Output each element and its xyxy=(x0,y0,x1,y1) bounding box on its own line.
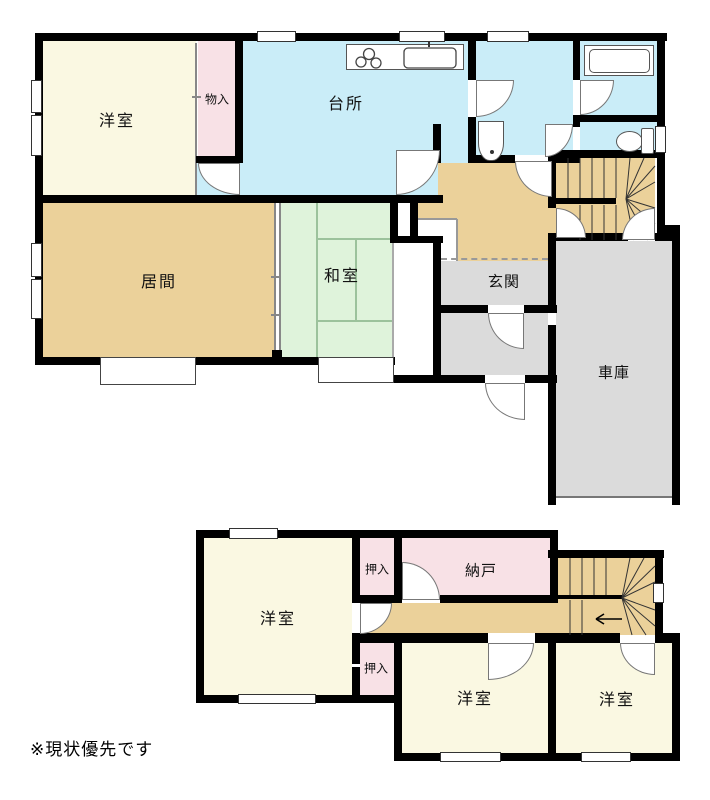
stair-arrow-icon xyxy=(596,614,622,624)
wall xyxy=(433,243,441,383)
wall xyxy=(352,538,360,603)
window xyxy=(399,31,445,42)
bay-window-japanese xyxy=(318,357,394,383)
hall-1f-c xyxy=(418,203,548,219)
toilet-tank-icon xyxy=(641,128,654,154)
wall xyxy=(394,641,402,761)
window xyxy=(487,31,529,42)
wall xyxy=(196,156,243,163)
wall xyxy=(657,152,665,233)
room-label-kitchen: 台所 xyxy=(328,90,364,114)
wall xyxy=(196,695,238,703)
wall xyxy=(655,558,663,583)
room-label-japanese: 和室 xyxy=(324,262,360,286)
window xyxy=(31,243,42,277)
room-label-garage: 車庫 xyxy=(598,362,630,383)
window xyxy=(653,583,664,603)
hall-1f-b xyxy=(443,195,548,203)
sliding-door-tick xyxy=(352,664,360,667)
washbasin-drain xyxy=(490,150,494,154)
window xyxy=(655,126,666,153)
window xyxy=(440,752,501,762)
wall-stub xyxy=(672,494,680,505)
wall xyxy=(672,233,680,505)
sliding-door-tick xyxy=(192,96,201,98)
wall xyxy=(433,305,488,313)
room-label-western-2f-1: 洋室 xyxy=(260,605,296,629)
wall xyxy=(394,753,440,761)
front-door xyxy=(485,383,525,420)
toilet-icon xyxy=(616,131,643,152)
wall xyxy=(235,33,243,158)
wall xyxy=(630,753,680,761)
window xyxy=(31,279,42,319)
room-label-western-2f-3: 洋室 xyxy=(599,686,635,710)
wall xyxy=(573,33,580,80)
wall xyxy=(548,325,556,505)
floor-plan: 洋室 物入 台所 居間 和室 玄関 車庫 xyxy=(0,0,710,800)
window xyxy=(238,694,316,704)
kitchen-counter xyxy=(346,44,464,70)
sliding-door-track xyxy=(195,43,197,195)
wall xyxy=(35,195,443,203)
tatami-line xyxy=(316,238,392,240)
wall xyxy=(548,241,556,310)
step-line xyxy=(456,219,458,261)
step-line xyxy=(418,218,457,220)
hall-1f-d xyxy=(457,219,548,261)
room-label-western-2f-2: 洋室 xyxy=(457,685,493,709)
room-label-storeroom: 納戸 xyxy=(465,560,497,581)
room-label-storage-1f: 物入 xyxy=(205,91,229,108)
tatami-line xyxy=(316,320,392,322)
wall xyxy=(524,305,557,313)
entrance-step-dashed-line xyxy=(441,258,548,260)
room-label-western-1f: 洋室 xyxy=(99,107,135,131)
wall xyxy=(352,595,402,603)
wall xyxy=(468,33,476,80)
wall xyxy=(550,538,558,603)
sink-icon xyxy=(404,48,456,68)
wall xyxy=(440,595,558,603)
garage-opening-line xyxy=(556,496,672,498)
wall xyxy=(672,643,680,761)
room-label-closet-upper: 押入 xyxy=(365,561,389,578)
wall xyxy=(655,602,663,635)
wall xyxy=(573,115,665,122)
wall xyxy=(196,538,204,703)
bathtub-icon xyxy=(584,45,654,76)
sliding-door-track xyxy=(279,203,281,357)
room-label-closet-lower: 押入 xyxy=(364,660,388,677)
bay-window-living xyxy=(100,357,196,385)
tatami-edge xyxy=(392,243,394,357)
tatami-line xyxy=(316,203,318,357)
room-label-entrance: 玄関 xyxy=(488,271,520,292)
disclaimer-note: ※現状優先です xyxy=(30,735,153,760)
sliding-door-tick xyxy=(271,276,281,278)
wall xyxy=(655,633,680,643)
window xyxy=(581,752,631,762)
wall xyxy=(657,225,680,233)
window xyxy=(257,31,296,42)
wall xyxy=(394,538,402,603)
wall xyxy=(525,375,557,383)
sliding-door-tick xyxy=(271,314,281,316)
wall xyxy=(657,33,665,127)
wall xyxy=(548,643,556,753)
bathtub-inner xyxy=(589,49,650,73)
stairs-2f xyxy=(558,558,655,635)
wall xyxy=(352,633,488,643)
wall xyxy=(390,375,485,383)
stove-icon xyxy=(347,45,465,71)
window xyxy=(31,115,42,156)
room-label-living: 居間 xyxy=(141,268,177,292)
wall xyxy=(500,753,582,761)
wall xyxy=(548,550,664,558)
wall xyxy=(390,236,443,243)
washbasin-icon xyxy=(478,121,504,161)
wall-stub xyxy=(548,494,556,505)
window xyxy=(229,528,278,539)
wall xyxy=(352,633,360,703)
sliding-door-track xyxy=(274,203,276,357)
window xyxy=(31,80,42,113)
